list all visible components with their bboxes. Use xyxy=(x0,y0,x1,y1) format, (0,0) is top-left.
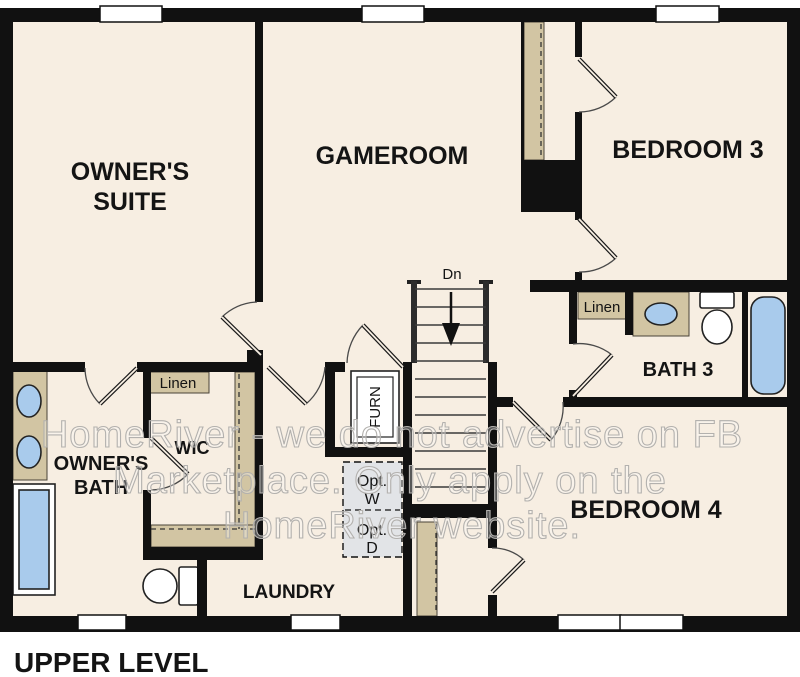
watermark-line1: HomeRiver - we do not advertise on FB xyxy=(41,414,743,456)
sink-icon xyxy=(645,303,677,325)
toilet-icon xyxy=(700,292,734,308)
window-icon xyxy=(656,6,719,22)
linen-label-bath3: Linen xyxy=(584,299,621,316)
sink-icon xyxy=(17,385,41,417)
room-label-bath3: BATH 3 xyxy=(643,359,714,381)
watermark-line2: Marketplace. Only apply on the xyxy=(113,460,667,502)
floor-plan-drawing: FURN Opt. W Opt. D xyxy=(0,0,800,677)
page-title: UPPER LEVEL xyxy=(14,647,208,677)
room-label-owners-suite-line1: OWNER'S xyxy=(71,158,189,186)
room-label-owners-suite-line2: SUITE xyxy=(93,188,167,216)
window-icon xyxy=(558,615,621,630)
window-icon xyxy=(78,615,126,630)
window-icon xyxy=(620,615,683,630)
sink-icon xyxy=(17,436,41,468)
floor-plan-page: FURN Opt. W Opt. D xyxy=(0,0,800,677)
window-icon xyxy=(362,6,424,22)
stairs-down-label: Dn xyxy=(442,266,461,283)
toilet-icon xyxy=(179,567,198,605)
watermark-line3: HomeRiver website. xyxy=(223,505,581,547)
linen-label-wic: Linen xyxy=(160,375,197,392)
room-label-gameroom: GAMEROOM xyxy=(316,142,469,170)
window-icon xyxy=(291,615,340,630)
window-icon xyxy=(100,6,162,22)
bathtub-icon xyxy=(751,297,785,394)
room-label-bedroom3: BEDROOM 3 xyxy=(612,136,763,164)
room-label-laundry: LAUNDRY xyxy=(243,582,336,603)
